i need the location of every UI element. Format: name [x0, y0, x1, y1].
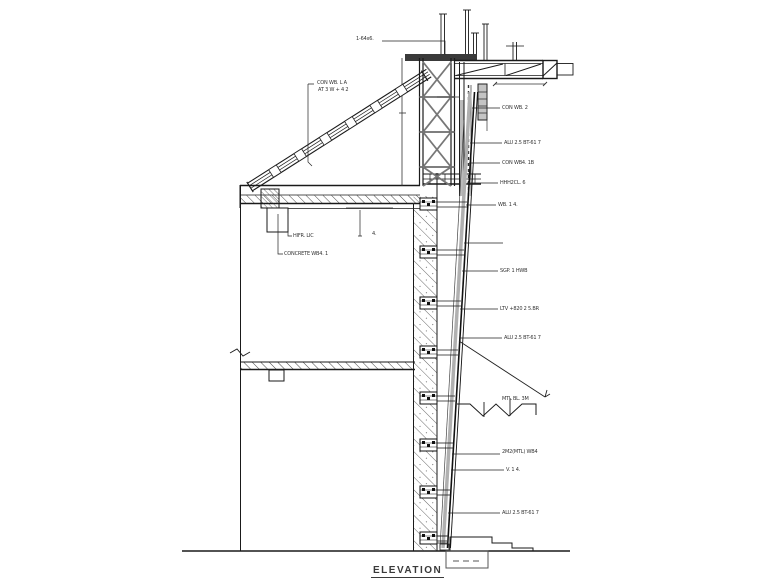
- annotation-brace-line1: CON WB. L A: [317, 80, 347, 87]
- outrigger-truss: [455, 61, 573, 87]
- cad-drawing-canvas: 1-64x6. CON WB. L A AT 3 W + 4 2 HIFR. L…: [0, 0, 780, 585]
- annotation-r8: ALU 2.5 BT-61 7: [504, 335, 541, 341]
- annotation-r1: CON WB. 2: [502, 105, 528, 111]
- annotation-r12: ALU 2.5 BT-61 7: [502, 510, 539, 516]
- annotation-r4: HHH2CL. 6: [500, 180, 525, 186]
- drawing-title: ELEVATION: [371, 565, 444, 578]
- annotation-beam-upper: HIFR. LIC: [293, 233, 314, 239]
- roof-beam: [261, 189, 288, 232]
- mast-lines: [439, 10, 524, 60]
- annotation-r3: CON WB4. 1B: [502, 160, 534, 166]
- annotation-brace-line2: AT 3 W + 4 2: [318, 87, 348, 94]
- annotation-slab-tick: 4.: [372, 231, 376, 237]
- annotation-r6: SGP. 1 HWB: [500, 268, 527, 274]
- annotation-beam-lower: CONCRETE WB4. 1: [284, 251, 328, 257]
- annotation-r5: WB. 1 4.: [498, 202, 518, 208]
- foundation-plinth: [437, 536, 533, 568]
- annotation-top-left: 1-64x6.: [356, 36, 374, 42]
- annotation-r9: MTL BL. 3M: [502, 396, 529, 402]
- elevation-drawing: [0, 0, 780, 585]
- annotation-r2: ALU 2.5 BT-61 7: [504, 140, 541, 146]
- annotation-r11: V. 1 4.: [506, 467, 520, 473]
- annotation-r7: LTV +820 2 5.BR: [500, 306, 539, 312]
- annotation-r10: 2M2(MTL) WB4: [502, 449, 537, 455]
- floor-slab: [240, 362, 415, 381]
